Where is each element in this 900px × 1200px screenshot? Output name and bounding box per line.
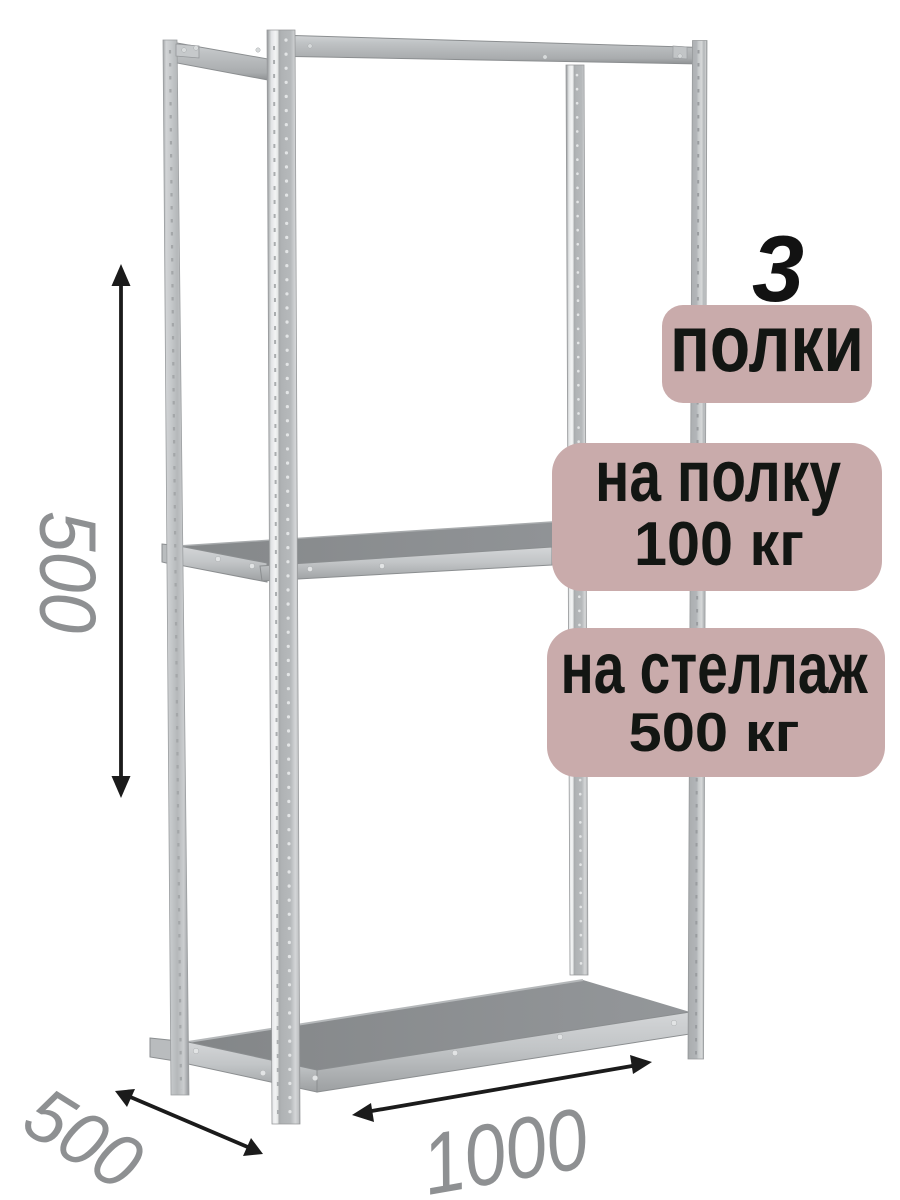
svg-text:500: 500 xyxy=(24,511,113,633)
svg-text:на полку: на полку xyxy=(595,437,841,517)
svg-text:500: 500 xyxy=(10,1071,157,1200)
svg-text:на стеллаж: на стеллаж xyxy=(561,629,869,709)
svg-text:1000: 1000 xyxy=(415,1090,595,1200)
svg-text:100 кг: 100 кг xyxy=(634,510,804,579)
svg-text:500 кг: 500 кг xyxy=(629,701,800,763)
svg-text:полки: полки xyxy=(670,299,864,389)
